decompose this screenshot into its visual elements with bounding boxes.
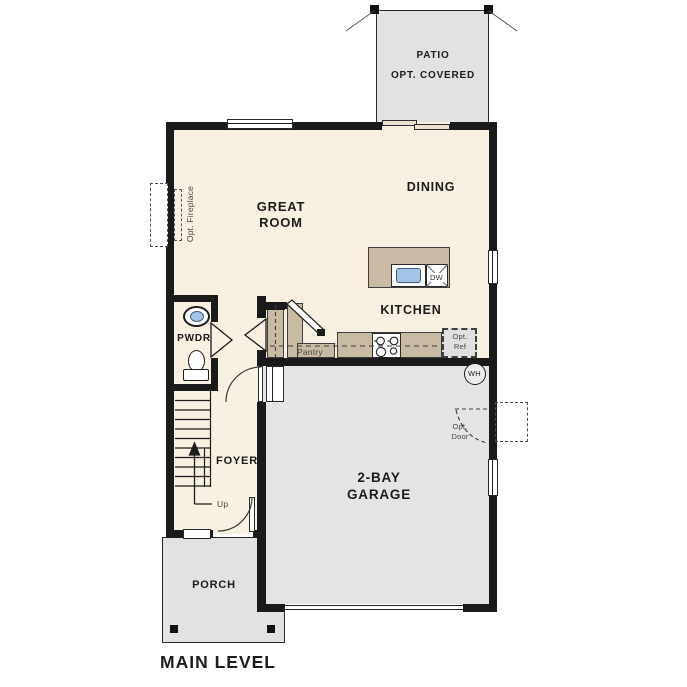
- patio-slab: [376, 10, 489, 123]
- opt-fireplace-box: [150, 183, 168, 247]
- garage-entry-step: [266, 366, 284, 402]
- dining-label: DINING: [407, 180, 456, 196]
- front-door-leaf: [249, 497, 255, 532]
- toilet-tank: [183, 369, 209, 381]
- island-sink: [396, 268, 421, 283]
- opt-ref-label: Opt. Ref: [453, 332, 468, 352]
- floor-plan: PATIO OPT. COVERED GREAT ROOM DINING KIT…: [0, 0, 687, 687]
- pantry-shelf-left: [267, 303, 284, 358]
- patio-post-left: [370, 5, 379, 14]
- garage-label: 2-BAY GARAGE: [347, 470, 411, 504]
- dw-label: DW: [429, 273, 444, 282]
- window-garage: [488, 459, 498, 496]
- pantry-label: Pantry: [297, 347, 323, 357]
- porch-label: PORCH: [192, 579, 236, 593]
- window-dining-line: [492, 251, 493, 283]
- opt-fireplace-label: Opt. Fireplace: [185, 178, 195, 250]
- up-label: Up: [217, 499, 228, 509]
- wall-pwdr-right-a: [211, 295, 218, 322]
- garage-entry-step-line: [272, 367, 273, 401]
- porch-post-right: [267, 625, 275, 633]
- great-room-label: GREAT ROOM: [257, 199, 306, 232]
- plan-title: MAIN LEVEL: [160, 652, 276, 674]
- patio-post-right: [484, 5, 493, 14]
- foyer-label: FOYER: [216, 455, 258, 469]
- porch-post-left: [170, 625, 178, 633]
- window-great-room-line: [228, 123, 292, 124]
- wall-pwdr-bottom: [166, 384, 218, 391]
- window-dining: [488, 250, 498, 284]
- patio-note-label: OPT. COVERED: [391, 70, 475, 83]
- garage-entry-door-leaf: [258, 366, 263, 402]
- pwdr-sink-basin: [190, 311, 204, 322]
- kitchen-label: KITCHEN: [380, 303, 441, 319]
- wall-interior-vert-b: [257, 350, 266, 366]
- wh-label: WH: [468, 369, 481, 378]
- pwdr-label: PWDR: [177, 333, 211, 346]
- range: [372, 333, 401, 358]
- patio-label: PATIO: [416, 50, 449, 63]
- wall-interior-vert-c: [257, 402, 266, 612]
- opt-fireplace-hearth: [174, 189, 182, 241]
- garage-door-panel: [285, 605, 463, 610]
- wall-pantry-top: [257, 302, 285, 310]
- opt-door-label: Opt. Door: [451, 422, 468, 442]
- sliding-door-panel-left: [382, 120, 417, 126]
- opt-door-box: [495, 402, 528, 442]
- window-garage-line: [492, 460, 493, 495]
- sliding-door-panel-right: [414, 124, 450, 130]
- window-foyer: [183, 529, 211, 539]
- wall-kitchen-garage: [257, 358, 497, 366]
- window-great-room: [227, 119, 293, 129]
- wall-right: [489, 122, 497, 612]
